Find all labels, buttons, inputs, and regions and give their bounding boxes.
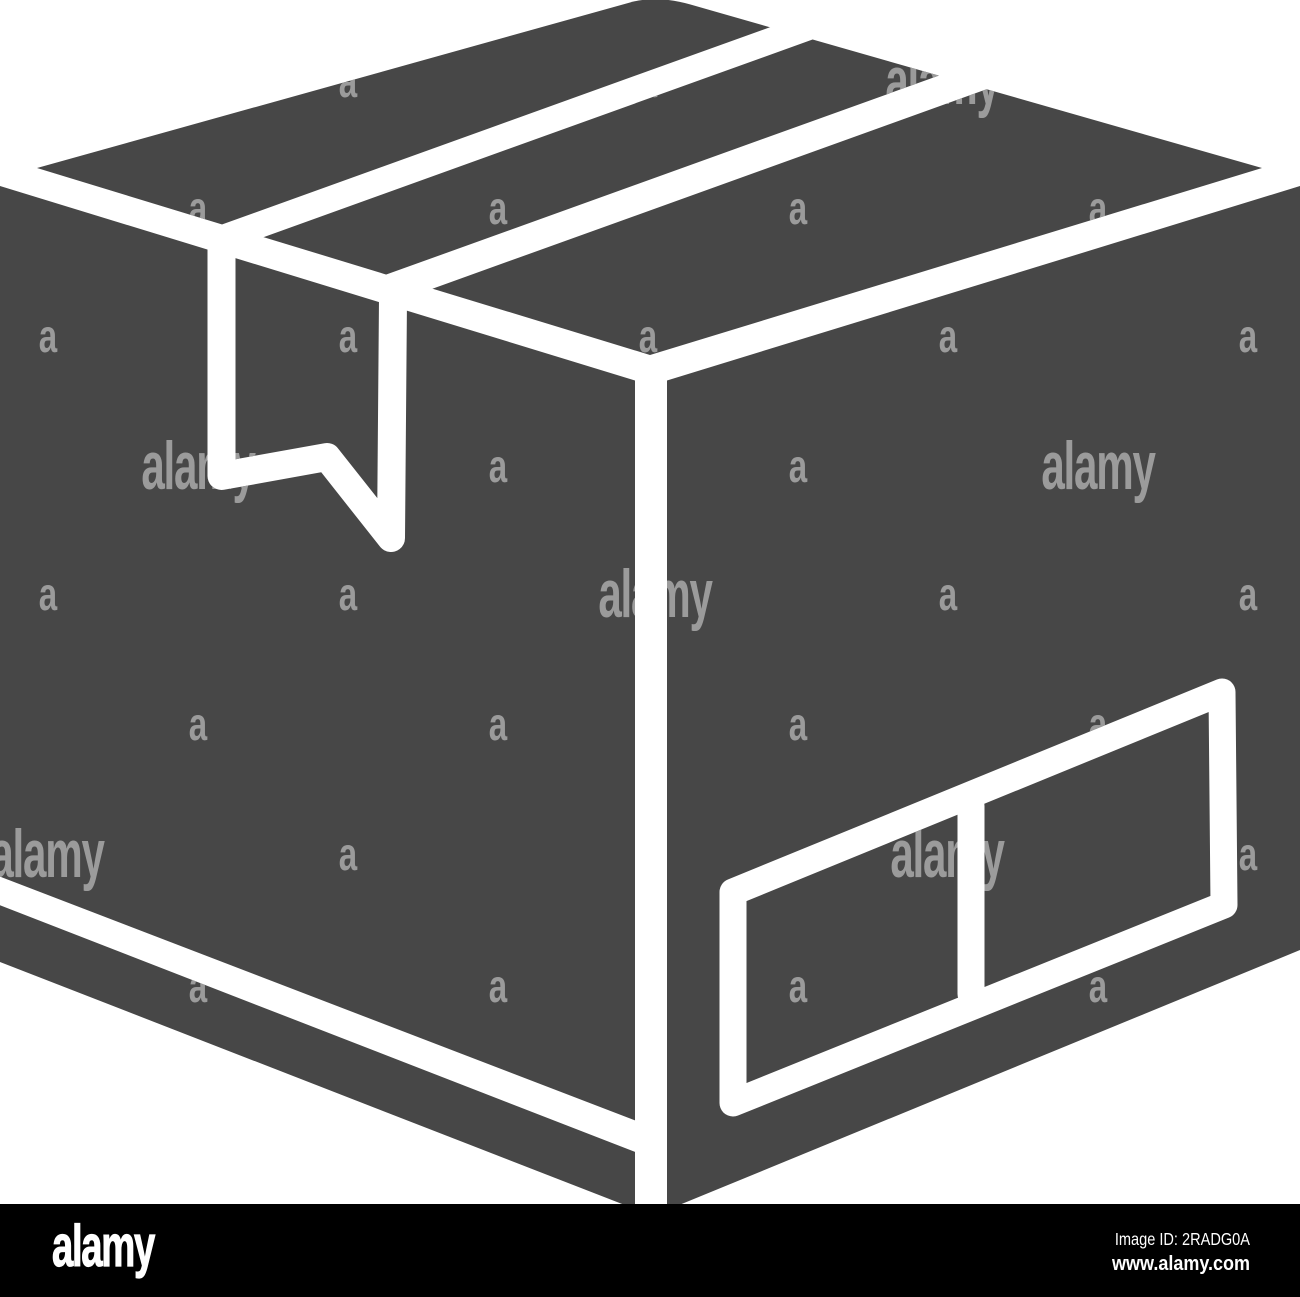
- svg-text:a: a: [339, 57, 358, 107]
- svg-text:a: a: [939, 312, 958, 362]
- svg-text:a: a: [639, 830, 658, 880]
- svg-text:a: a: [1089, 962, 1108, 1012]
- svg-text:a: a: [339, 830, 358, 880]
- svg-text:a: a: [489, 700, 508, 750]
- svg-text:a: a: [1089, 184, 1108, 234]
- svg-text:a: a: [1089, 700, 1108, 750]
- svg-text:a: a: [339, 312, 358, 362]
- svg-text:a: a: [39, 312, 58, 362]
- svg-text:Image ID: 2RADG0A: Image ID: 2RADG0A: [1115, 1230, 1250, 1250]
- svg-text:alamy: alamy: [0, 816, 105, 892]
- svg-text:a: a: [639, 57, 658, 107]
- svg-text:a: a: [789, 184, 808, 234]
- svg-text:a: a: [789, 442, 808, 492]
- svg-text:alamy: alamy: [885, 43, 1000, 119]
- svg-text:a: a: [789, 700, 808, 750]
- svg-text:alamy: alamy: [1041, 428, 1156, 504]
- svg-text:a: a: [189, 184, 208, 234]
- svg-text:a: a: [1239, 830, 1258, 880]
- svg-text:a: a: [489, 442, 508, 492]
- svg-text:a: a: [1239, 312, 1258, 362]
- svg-text:alamy: alamy: [141, 428, 256, 504]
- svg-text:alamy: alamy: [890, 816, 1005, 892]
- svg-text:a: a: [939, 570, 958, 620]
- svg-text:a: a: [1239, 570, 1258, 620]
- svg-text:a: a: [639, 312, 658, 362]
- svg-text:www.alamy.com: www.alamy.com: [1111, 1253, 1250, 1275]
- svg-text:a: a: [339, 570, 358, 620]
- svg-text:a: a: [189, 962, 208, 1012]
- svg-text:a: a: [489, 962, 508, 1012]
- svg-text:alamy: alamy: [598, 556, 713, 632]
- svg-text:a: a: [789, 962, 808, 1012]
- svg-text:a: a: [39, 570, 58, 620]
- svg-text:alamy: alamy: [52, 1215, 156, 1279]
- svg-text:a: a: [189, 700, 208, 750]
- svg-text:a: a: [489, 184, 508, 234]
